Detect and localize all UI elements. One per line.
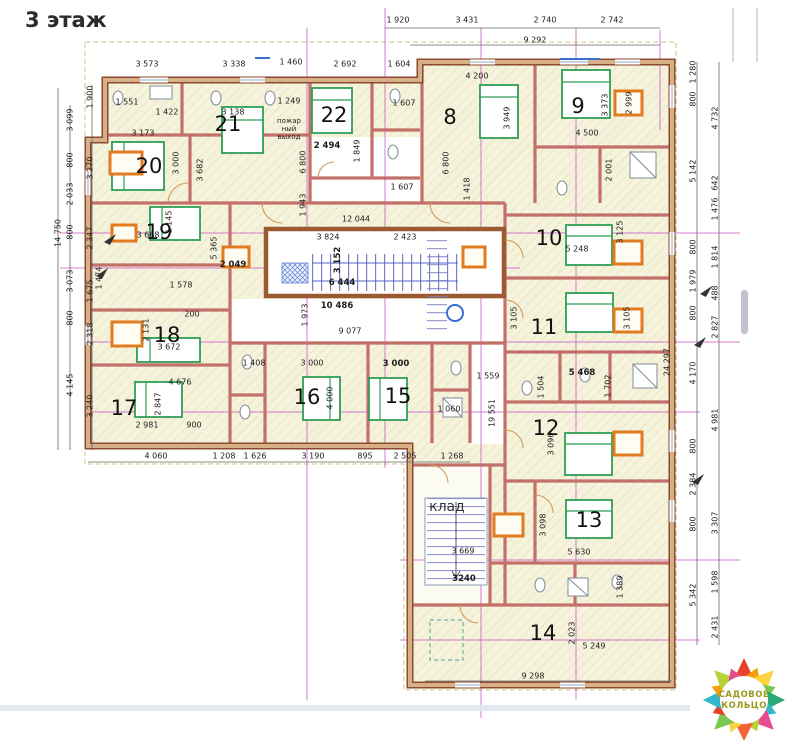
scrollbar-thumb[interactable] <box>741 290 748 334</box>
dim-label: 1 408 <box>243 359 266 368</box>
dim-label: 4 500 <box>576 129 599 138</box>
dim-label: 2 131 <box>142 319 151 342</box>
room-number: 9 <box>571 94 584 118</box>
dim-label: 1 604 <box>388 60 411 69</box>
dim-label: 3 240 <box>86 395 95 418</box>
dim-label: 4 170 <box>689 362 698 385</box>
dim-label: 1 422 <box>156 108 179 117</box>
room-number: 12 <box>533 416 560 440</box>
dim-label: 4 981 <box>711 409 720 432</box>
dim-label: 1 607 <box>391 183 414 192</box>
dim-label: 2 494 <box>314 141 341 151</box>
floor-plan-svg: 1 9203 4312 7402 7429 2923 5733 3381 460… <box>0 0 800 747</box>
dim-label: 3 105 <box>510 307 519 330</box>
dim-label: 3 125 <box>616 221 625 244</box>
dim-label: 3 098 <box>539 514 548 537</box>
fire-exit-line: ный <box>282 125 297 133</box>
dim-label: 1 249 <box>278 97 301 106</box>
dim-label: 3 682 <box>196 159 205 182</box>
room-number: 10 <box>536 226 563 250</box>
dim-label: 1 920 <box>387 16 410 25</box>
dim-label: 800 <box>689 305 698 320</box>
dim-label: 2 740 <box>534 16 557 25</box>
dim-label: 800 <box>66 152 75 167</box>
dim-label: 800 <box>689 438 698 453</box>
elevator-shaft <box>282 263 308 283</box>
dim-label: 5 249 <box>583 642 606 651</box>
dim-label: 5 142 <box>689 160 698 183</box>
dim-label: 800 <box>689 239 698 254</box>
bed <box>480 85 518 138</box>
dim-label: 3 173 <box>132 129 155 138</box>
dim-label: 2 384 <box>689 473 698 496</box>
dim-label: 2 431 <box>711 616 720 639</box>
dim-label: 1 476 <box>711 198 720 221</box>
dim-label: 1 389 <box>616 576 625 599</box>
dim-label: 1 607 <box>393 99 416 108</box>
dim-label: 5 342 <box>689 584 698 607</box>
room-number: 22 <box>321 103 348 127</box>
dim-label: 6 800 <box>299 151 308 174</box>
dim-label: 1 979 <box>689 270 698 293</box>
dim-label: 1 598 <box>711 571 720 594</box>
dim-label: 2 692 <box>334 60 357 69</box>
dim-label: 800 <box>689 91 698 106</box>
dim-label: 1 675 <box>86 280 95 303</box>
dim-label: 9 077 <box>339 327 362 336</box>
dim-label: 2 347 <box>86 227 95 250</box>
dim-label: 4 000 <box>326 387 335 410</box>
room-number: 19 <box>146 220 173 244</box>
page-title: 3 этаж <box>25 8 107 32</box>
dim-label: 3 000 <box>383 359 410 369</box>
dim-label: 1 268 <box>441 452 464 461</box>
dim-label: 2 023 <box>568 622 577 645</box>
room-number: 21 <box>215 112 242 136</box>
dim-label: 4 676 <box>169 378 192 387</box>
dim-label: 800 <box>66 310 75 325</box>
dim-label: 2 049 <box>220 260 247 270</box>
dim-label: 5 468 <box>569 368 596 378</box>
dim-label: 3 073 <box>66 270 75 293</box>
dim-label: 2 505 <box>394 452 417 461</box>
dim-label: 1 551 <box>116 98 139 107</box>
dim-label: 1 578 <box>170 281 193 290</box>
dim-label: 5 630 <box>568 548 591 557</box>
dim-label: 1 559 <box>477 372 500 381</box>
dim-label: 1 973 <box>301 304 310 327</box>
dim-label: 3240 <box>452 574 476 584</box>
dim-label: 3 338 <box>223 60 246 69</box>
room-number: 11 <box>531 315 558 339</box>
dim-label: 19 551 <box>488 399 497 427</box>
dim-label: 4 200 <box>466 72 489 81</box>
floor-plan-page: 1 9203 4312 7402 7429 2923 5733 3381 460… <box>0 0 800 747</box>
dim-label: 3 000 <box>172 152 181 175</box>
room-number: 15 <box>385 384 412 408</box>
dim-label: 6 444 <box>329 278 356 288</box>
dim-label: 3 431 <box>456 16 479 25</box>
dim-label: 2 033 <box>66 183 75 206</box>
storage-label: клад <box>429 499 465 515</box>
logo: САДОВОЕ КОЛЬЦО <box>703 658 785 741</box>
dim-label: 2 999 <box>625 92 634 115</box>
dim-label: 1 900 <box>86 86 95 109</box>
dim-label: 2 423 <box>394 233 417 242</box>
dim-label: 3 373 <box>601 94 610 117</box>
dim-label: 2 742 <box>601 16 624 25</box>
room-number: 18 <box>154 323 181 347</box>
dim-label: 1 460 <box>280 58 303 67</box>
dim-label: 1 208 <box>213 452 236 461</box>
dim-label: 2 827 <box>711 316 720 339</box>
dim-label: 2 847 <box>154 393 163 416</box>
dim-label: 1 504 <box>537 376 546 399</box>
dim-label: 1 060 <box>438 405 461 414</box>
bed <box>566 293 613 332</box>
dim-label: 14 750 <box>54 219 63 247</box>
dim-label: 1 474 <box>95 267 104 290</box>
dim-label: 3 573 <box>136 60 159 69</box>
dim-label: 488 <box>711 285 720 300</box>
room-number: 16 <box>294 385 321 409</box>
fire-exit-line: пожар <box>277 117 301 125</box>
dim-label: 2 001 <box>605 159 614 182</box>
fire-exit-line: выход <box>278 133 301 141</box>
dim-label: 4 145 <box>66 374 75 397</box>
dim-label: 3 669 <box>452 547 475 556</box>
dim-label: 10 486 <box>321 301 354 311</box>
dim-label: 4 060 <box>145 452 168 461</box>
dim-label: 4 732 <box>711 107 720 130</box>
dim-label: 800 <box>66 224 75 239</box>
dim-label: 2 981 <box>136 421 159 430</box>
room-number: 13 <box>576 508 603 532</box>
dim-label: 3 190 <box>302 452 325 461</box>
dim-label: 9 292 <box>524 36 547 45</box>
dim-label: 900 <box>186 421 201 430</box>
dim-label: 3 105 <box>623 307 632 330</box>
room-number: 14 <box>530 621 557 645</box>
room-number: 20 <box>136 154 163 178</box>
dim-label: 3 949 <box>503 107 512 130</box>
dim-label: 1 280 <box>689 61 698 84</box>
logo-text-line1: САДОВОЕ <box>719 690 770 700</box>
dim-label: 3 000 <box>301 359 324 368</box>
dim-label: 5 248 <box>566 245 589 254</box>
dim-label: 1 702 <box>604 375 613 398</box>
dim-label: 1 626 <box>244 452 267 461</box>
dim-label: 24 297 <box>663 348 672 376</box>
dim-label: 2 318 <box>86 323 95 346</box>
bed <box>565 433 612 475</box>
window-edge-band <box>0 705 690 711</box>
dim-label: 1 814 <box>711 246 720 269</box>
dim-label: 1 418 <box>463 178 472 201</box>
dim-label: 3 307 <box>711 512 720 535</box>
dim-label: 3 270 <box>86 157 95 180</box>
dim-label: 1 849 <box>353 140 362 163</box>
room-number: 17 <box>111 396 138 420</box>
dim-label: 5 365 <box>210 237 219 260</box>
dim-label: 3 099 <box>66 109 75 132</box>
dim-label: 200 <box>184 310 199 319</box>
dim-label: 1 943 <box>299 194 308 217</box>
dim-label: 3 152 <box>333 247 343 274</box>
dim-label: 6 800 <box>442 152 451 175</box>
dim-label: 9 298 <box>522 672 545 681</box>
dim-label: 3 824 <box>317 233 340 242</box>
room-number: 8 <box>443 105 456 129</box>
dim-label: 800 <box>689 516 698 531</box>
dim-label: 642 <box>711 175 720 190</box>
dim-label: 895 <box>357 452 372 461</box>
logo-text-line2: КОЛЬЦО <box>721 701 767 711</box>
dim-label: 12 044 <box>342 215 370 224</box>
